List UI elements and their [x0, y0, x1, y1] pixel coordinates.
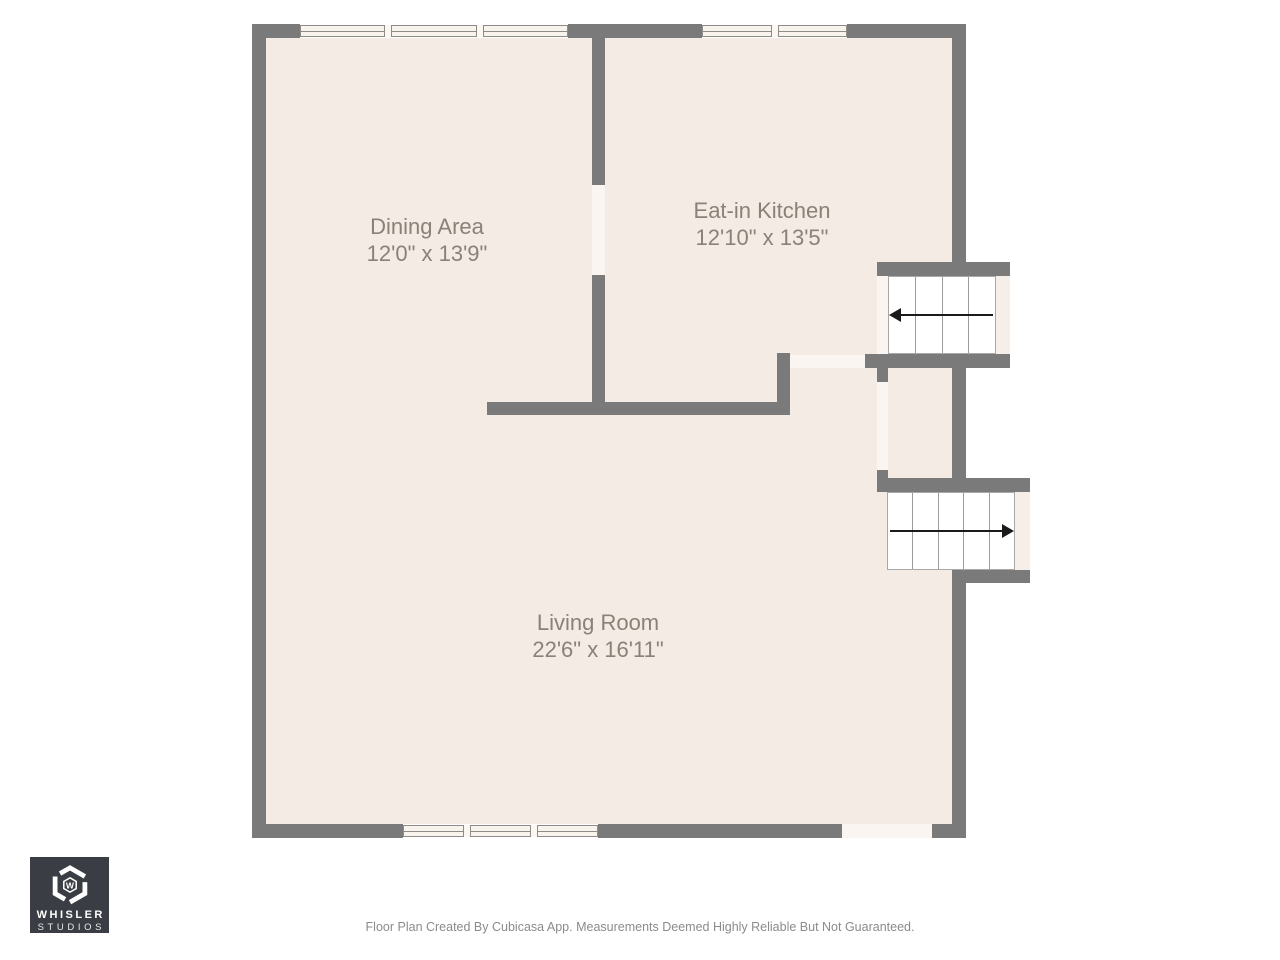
- wall-top-segment-c: [847, 24, 966, 38]
- window-top-right: [702, 25, 847, 37]
- window-top-left: [300, 25, 568, 37]
- upper-staircase: [888, 276, 996, 354]
- floor-plan: Dining Area 12'0" x 13'9" Eat-in Kitchen…: [0, 0, 1280, 960]
- wall-hall-horizontal: [487, 402, 790, 415]
- wall-stair1-left-post: [877, 368, 888, 382]
- wall-divider-lower: [592, 275, 605, 415]
- wall-stair2-bottom: [952, 570, 1030, 583]
- room-dimensions: 12'10" x 13'5": [694, 224, 831, 251]
- room-name: Dining Area: [367, 213, 488, 240]
- opening-kitchen-hall-door: [790, 355, 865, 368]
- window-bottom: [403, 825, 598, 837]
- floor-area: [266, 38, 952, 824]
- wall-stair1-bottom: [865, 354, 1010, 368]
- room-dimensions: 22'6" x 16'11": [532, 636, 663, 663]
- room-dimensions: 12'0" x 13'9": [367, 240, 488, 267]
- stair-direction-arrow-icon: [1002, 524, 1014, 538]
- wall-bottom-segment-a: [252, 824, 403, 838]
- footer-disclaimer: Floor Plan Created By Cubicasa App. Meas…: [0, 920, 1280, 934]
- wall-divider-upper: [592, 38, 605, 185]
- opening-landing-left: [877, 382, 888, 470]
- room-label-kitchen: Eat-in Kitchen 12'10" x 13'5": [694, 197, 831, 251]
- room-name: Eat-in Kitchen: [694, 197, 831, 224]
- wall-kitchen-post: [777, 353, 790, 415]
- stair1-right-strip: [996, 276, 1010, 354]
- wall-stair1-top: [877, 262, 1010, 276]
- wall-stair2-top: [888, 478, 1030, 492]
- opening-dining-kitchen-door: [592, 185, 605, 275]
- room-label-living: Living Room 22'6" x 16'11": [532, 609, 663, 663]
- logo-monogram: W: [65, 880, 74, 890]
- wall-right-segment-b: [952, 368, 966, 480]
- stair-direction-line: [891, 314, 993, 316]
- stair2-right-strip: [1015, 492, 1030, 570]
- wall-right-segment-a: [952, 24, 966, 263]
- room-name: Living Room: [532, 609, 663, 636]
- lower-staircase: [887, 492, 1015, 570]
- opening-bottom-door: [842, 824, 932, 838]
- opening-stair1-entry: [877, 276, 888, 354]
- wall-left: [252, 24, 266, 838]
- hexagon-logo-icon: W: [47, 864, 93, 906]
- room-label-dining: Dining Area 12'0" x 13'9": [367, 213, 488, 267]
- wall-bottom-segment-b: [598, 824, 842, 838]
- wall-stair2-left-post: [877, 470, 888, 492]
- stair-direction-arrow-icon: [889, 308, 901, 322]
- stair-direction-line: [890, 530, 1012, 532]
- page: Dining Area 12'0" x 13'9" Eat-in Kitchen…: [0, 0, 1280, 960]
- wall-top-segment-b: [568, 24, 702, 38]
- wall-right-segment-c: [952, 583, 966, 838]
